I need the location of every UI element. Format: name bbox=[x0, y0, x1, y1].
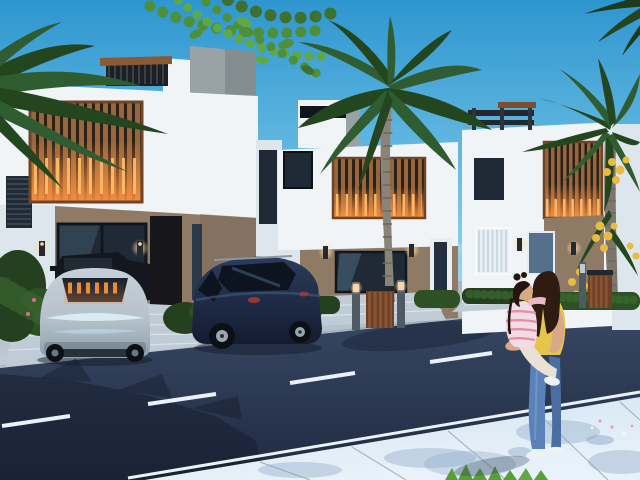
blinds-window bbox=[476, 228, 510, 274]
render-viewport bbox=[0, 0, 640, 480]
wall-sconce bbox=[512, 236, 528, 252]
pigtail bbox=[521, 272, 527, 278]
wall-sconce bbox=[318, 244, 334, 260]
entry-door bbox=[150, 216, 182, 308]
side-slat-window bbox=[6, 176, 32, 228]
street-scene bbox=[0, 0, 640, 480]
wall-sconce bbox=[131, 239, 149, 257]
sedan bbox=[37, 268, 153, 366]
taillight bbox=[299, 292, 309, 297]
hedge bbox=[414, 290, 460, 308]
wheel bbox=[209, 323, 235, 349]
wall-sconce bbox=[33, 239, 51, 257]
upper-window bbox=[284, 152, 312, 188]
wall-sconce bbox=[404, 242, 420, 258]
wheel bbox=[289, 321, 311, 343]
wheel bbox=[126, 344, 144, 362]
trash-bin bbox=[587, 270, 613, 308]
suv bbox=[192, 256, 322, 355]
wood-slat-panel bbox=[333, 158, 425, 218]
glass-window bbox=[528, 232, 554, 274]
narrow-window bbox=[259, 150, 277, 224]
bollard-light bbox=[579, 262, 586, 308]
pigtail bbox=[513, 273, 520, 280]
trash-bin bbox=[365, 286, 395, 328]
wall-sconce bbox=[566, 240, 582, 256]
diffuser bbox=[56, 349, 134, 357]
wheel bbox=[46, 344, 64, 362]
taillight bbox=[248, 297, 260, 303]
upper-window bbox=[474, 158, 504, 200]
pickup-mirror bbox=[50, 266, 56, 271]
